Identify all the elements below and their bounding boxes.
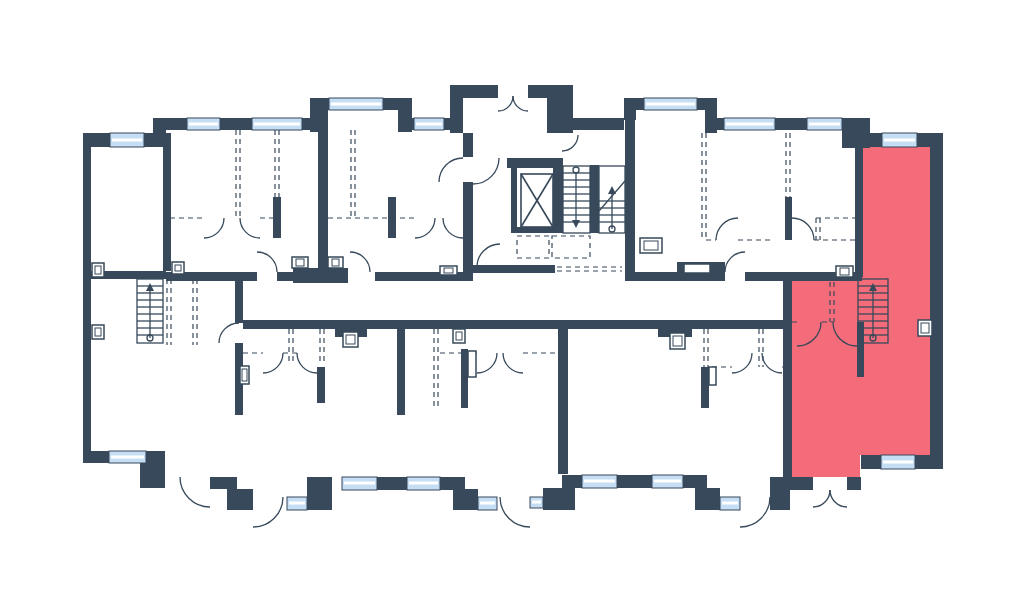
window-icon bbox=[652, 475, 683, 488]
door-arc-icon bbox=[204, 218, 224, 238]
door-arc-icon bbox=[830, 490, 847, 507]
door-arc-icon bbox=[562, 135, 578, 151]
vent-box-icon bbox=[709, 367, 716, 385]
door-arc-icon bbox=[762, 353, 782, 373]
door-arc-icon bbox=[503, 353, 523, 373]
door-arc-icon bbox=[219, 323, 239, 343]
vent-box-icon bbox=[328, 257, 343, 268]
door-arc-icon bbox=[732, 353, 752, 373]
door-arc-icon bbox=[716, 218, 738, 240]
window-icon bbox=[414, 118, 444, 130]
window-icon bbox=[881, 455, 915, 469]
vent-box-icon bbox=[453, 329, 465, 343]
window-icon bbox=[109, 451, 146, 463]
vent-box-icon bbox=[440, 266, 457, 275]
door-arc-icon bbox=[725, 252, 745, 272]
window-icon bbox=[252, 118, 302, 130]
elevator-icon bbox=[521, 174, 553, 227]
window-icon bbox=[187, 118, 220, 130]
window-icon bbox=[530, 497, 543, 508]
door-arc-icon bbox=[180, 477, 210, 507]
door-arc-icon bbox=[792, 218, 814, 240]
window-icon bbox=[720, 497, 740, 510]
window-icon bbox=[807, 118, 842, 130]
vent-box-icon bbox=[684, 264, 710, 273]
door-arc-icon bbox=[263, 353, 283, 373]
window-icon bbox=[724, 118, 775, 130]
door-arc-icon bbox=[473, 158, 499, 184]
window-icon bbox=[110, 133, 144, 147]
door-arc-icon bbox=[240, 218, 260, 238]
vent-box-icon bbox=[468, 351, 476, 377]
radiator-icon bbox=[92, 325, 104, 339]
door-arc-icon bbox=[439, 158, 463, 182]
vent-box-icon bbox=[836, 266, 853, 277]
radiator-icon bbox=[172, 262, 184, 274]
vent-box-icon bbox=[670, 333, 685, 349]
window-icon bbox=[582, 475, 617, 488]
door-arc-icon bbox=[500, 497, 530, 527]
door-arc-icon bbox=[498, 96, 513, 111]
window-icon bbox=[342, 477, 377, 490]
window-icon bbox=[882, 133, 917, 147]
door-arc-icon bbox=[297, 353, 317, 373]
window-icon bbox=[287, 497, 307, 510]
radiator-icon bbox=[92, 263, 104, 277]
door-arc-icon bbox=[513, 96, 528, 111]
door-arc-icon bbox=[257, 252, 277, 272]
door-arc-icon bbox=[253, 497, 283, 527]
door-arc-icon bbox=[477, 353, 497, 373]
window-icon bbox=[407, 477, 440, 490]
vent-box-icon bbox=[292, 257, 308, 268]
window-icon bbox=[478, 497, 497, 510]
door-arc-icon bbox=[477, 244, 500, 267]
door-arc-icon bbox=[740, 497, 770, 527]
door-arc-icon bbox=[415, 218, 435, 238]
radiator-icon bbox=[240, 366, 249, 384]
window-icon bbox=[644, 98, 697, 110]
door-arc-icon bbox=[813, 490, 830, 507]
door-arc-icon bbox=[350, 252, 370, 272]
window-icon bbox=[329, 98, 383, 110]
vent-box-icon bbox=[343, 332, 358, 347]
radiator-icon bbox=[640, 238, 662, 253]
floor-plan bbox=[0, 0, 1024, 603]
stairs-left-unit-icon bbox=[137, 279, 163, 343]
radiator-icon bbox=[918, 320, 932, 336]
door-arc-icon bbox=[443, 218, 463, 238]
